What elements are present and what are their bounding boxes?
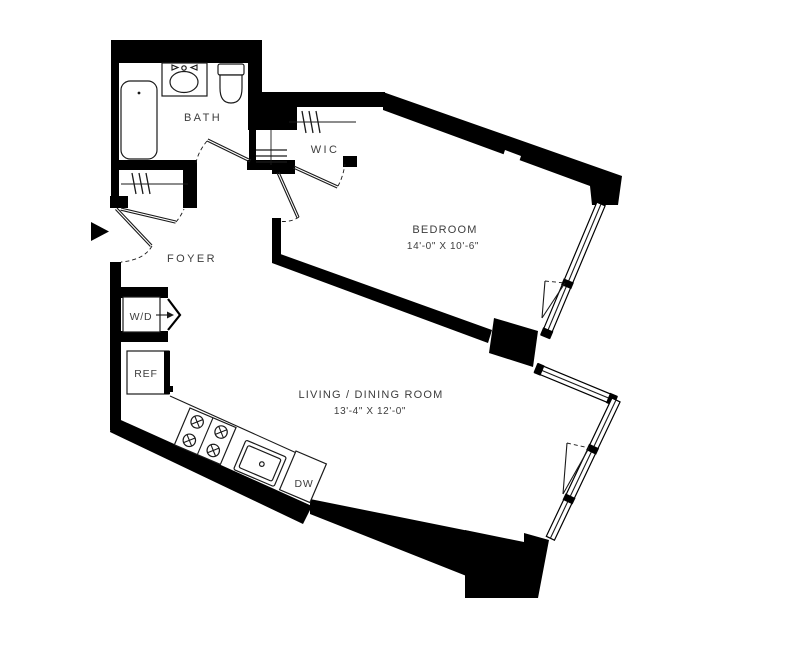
label-bedroom: BEDROOM <box>412 224 477 236</box>
wall-bedroom-living-divider <box>272 251 492 343</box>
entry-arrow <box>91 222 109 241</box>
bedroom-door <box>277 172 299 222</box>
foyer-closet-rod <box>121 173 188 194</box>
label-living-dims: 13'-4" X 12'-0" <box>334 406 406 417</box>
wall-window-junction-block <box>489 318 538 367</box>
living-window-upper <box>534 363 618 406</box>
windows <box>534 202 621 541</box>
wic-door <box>293 164 345 188</box>
foyer-closet-door <box>121 208 185 223</box>
wall-wd-top <box>119 287 168 298</box>
wall-left-upper <box>111 40 119 208</box>
wic-top-rod <box>289 111 356 133</box>
wall-wic-top <box>262 92 385 107</box>
bath-sink <box>162 63 207 96</box>
wall-bedroom-top-band <box>383 92 622 205</box>
wall-bedroom-door-block <box>272 162 295 174</box>
label-living-dining: LIVING / DINING ROOM <box>298 389 443 401</box>
bath-door <box>196 139 251 163</box>
label-wic: WIC <box>311 144 340 156</box>
label-dishwasher: DW <box>294 478 313 490</box>
bedroom-window <box>540 202 606 339</box>
wall-wd-bottom <box>119 331 168 342</box>
living-window-lower <box>545 398 621 541</box>
wall-bath-wic-thin <box>249 130 256 162</box>
label-refrigerator: REF <box>134 368 157 380</box>
wall-bath-right <box>248 63 262 97</box>
wall-bath-top <box>111 40 262 63</box>
floor-plan: BATH WIC FOYER BEDROOM 14'-0" X 10'-6" L… <box>0 0 803 655</box>
label-foyer: FOYER <box>167 253 217 265</box>
wall-bottom-right-block <box>465 530 549 598</box>
toilet <box>218 64 244 103</box>
wall-entry-jamb <box>110 196 128 208</box>
floor-plan-page: BATH WIC FOYER BEDROOM 14'-0" X 10'-6" L… <box>0 0 803 655</box>
label-bedroom-dims: 14'-0" X 10'-6" <box>407 241 479 252</box>
label-bath: BATH <box>184 112 222 124</box>
bathtub <box>121 81 157 159</box>
label-washer-dryer: W/D <box>130 311 153 323</box>
wic-left-rod <box>256 130 287 165</box>
wall-bottom <box>310 499 469 577</box>
